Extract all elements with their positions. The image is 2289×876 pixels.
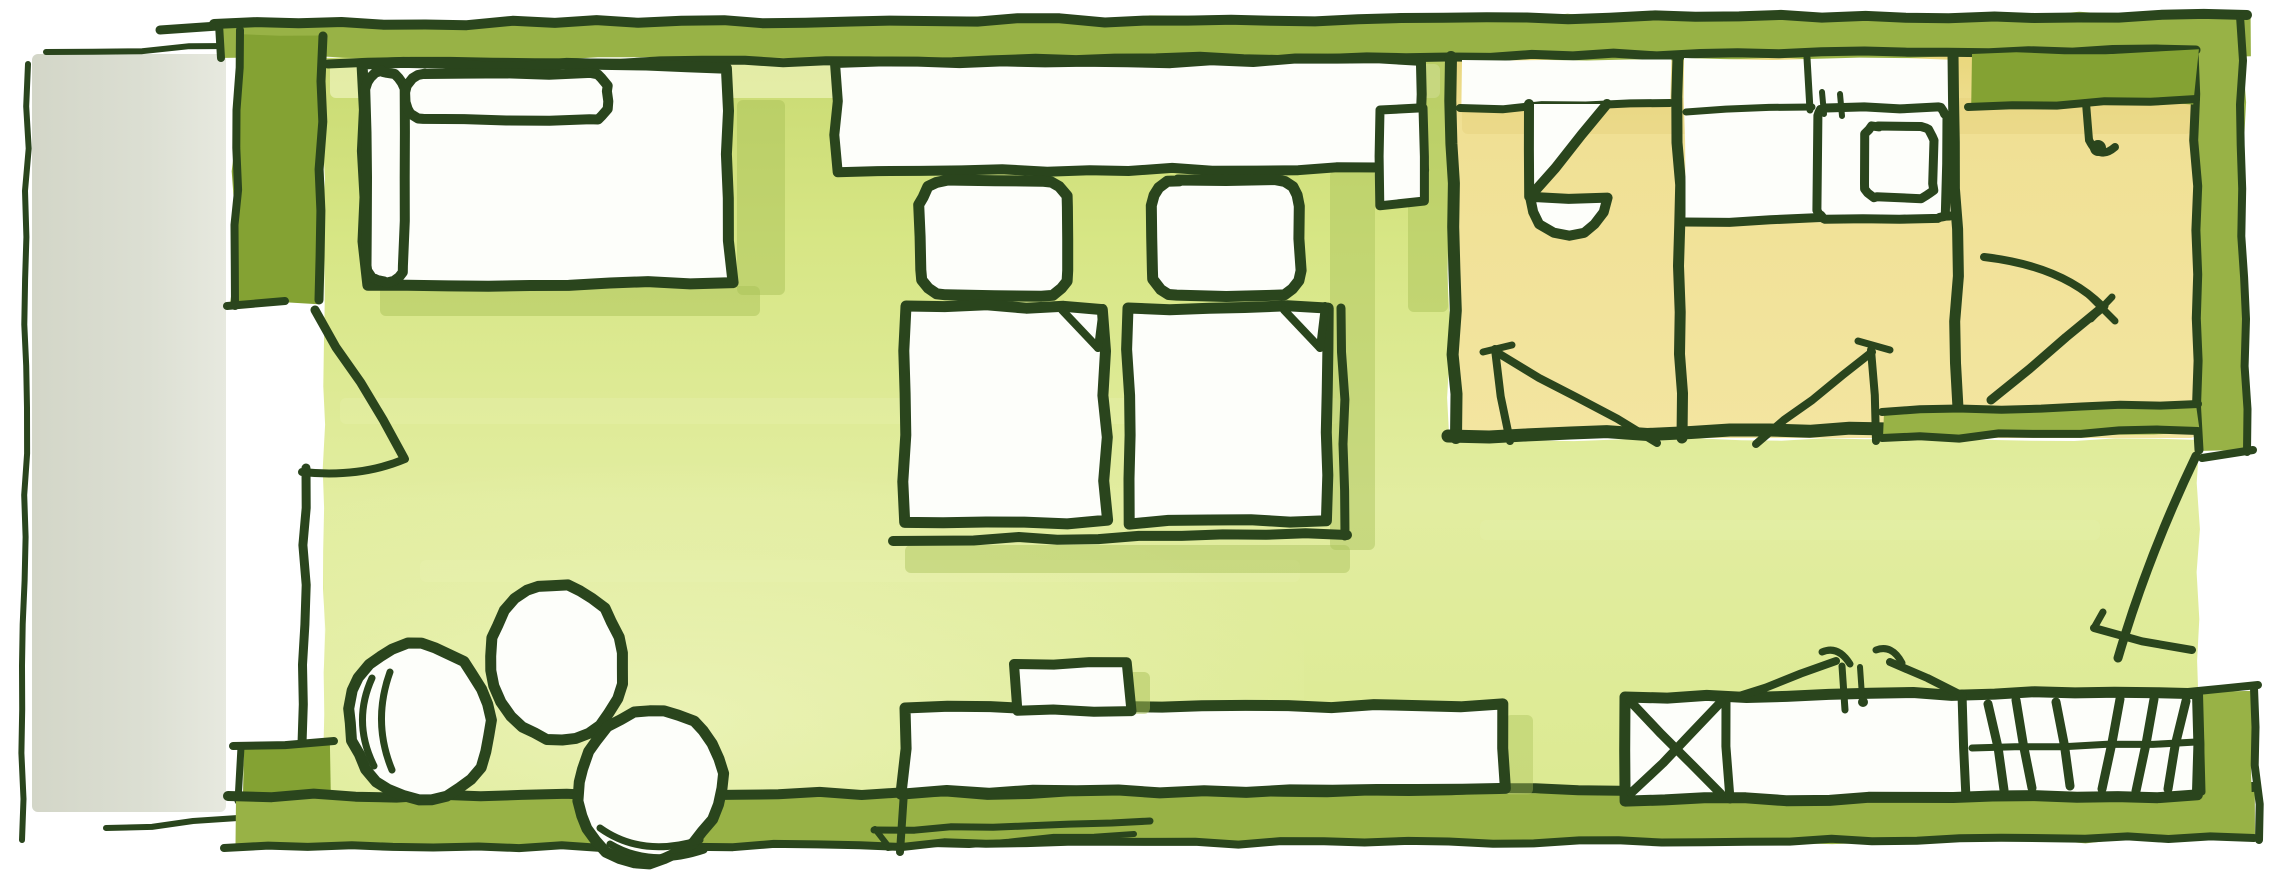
washroom-shower-wall <box>1953 54 1958 408</box>
left-wall-upper <box>227 30 325 306</box>
balcony-top-line <box>46 46 234 52</box>
right-wall-upper <box>2194 16 2253 458</box>
shower-wall-band <box>1968 49 2199 107</box>
pouf-left <box>349 643 492 800</box>
pouf-bottom <box>578 711 724 864</box>
double-bed <box>834 58 1424 573</box>
pouf-top <box>491 585 623 740</box>
toilet-cistern <box>1460 60 1671 110</box>
balcony-bottom-line <box>106 818 238 828</box>
left-wall-lower <box>302 468 306 744</box>
floor-plan-canvas <box>0 0 2289 876</box>
tv <box>1014 662 1150 714</box>
floor-plan-sketch <box>0 0 2289 876</box>
wc-washroom-wall <box>1677 56 1683 438</box>
balcony-floor <box>32 54 226 812</box>
sink <box>1817 92 1947 219</box>
balcony-edge-line <box>21 64 28 840</box>
daybed <box>362 62 785 316</box>
